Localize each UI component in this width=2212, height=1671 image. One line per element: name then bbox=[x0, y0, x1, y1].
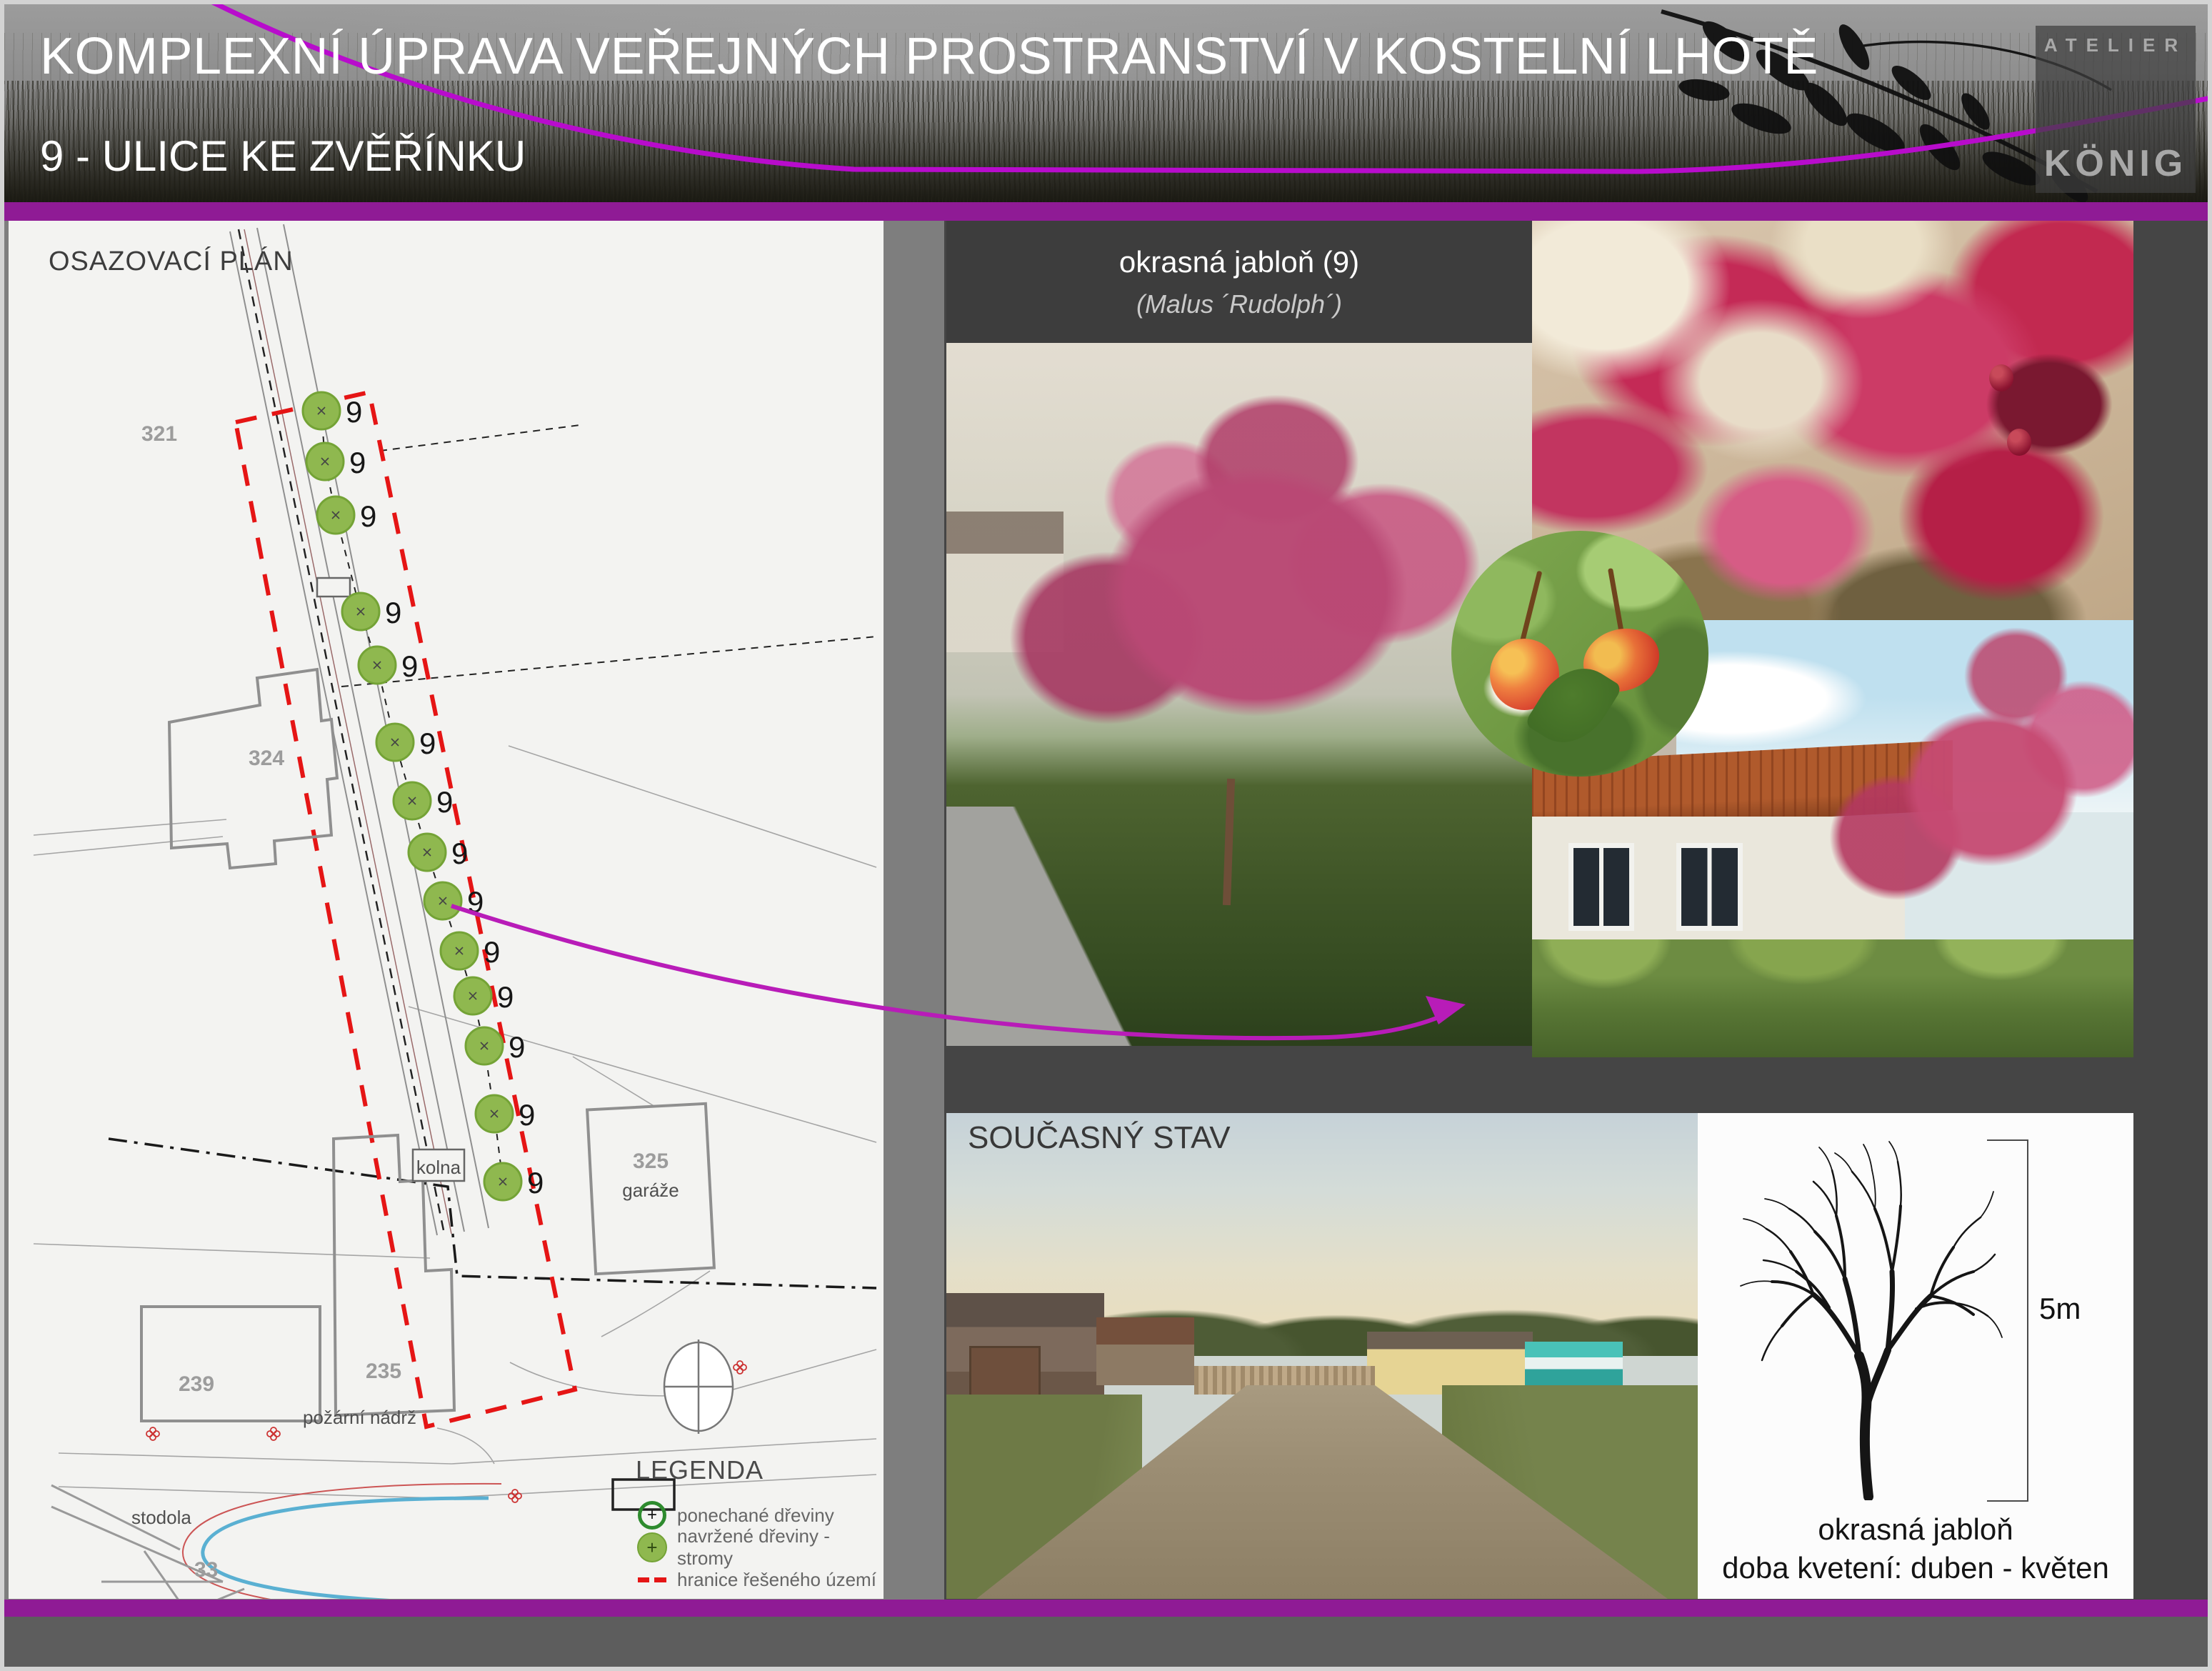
compass-icon bbox=[664, 1340, 733, 1434]
map-label-321: 321 bbox=[141, 422, 177, 446]
current-state-label: SOUČASNÝ STAV bbox=[968, 1120, 1231, 1156]
photo-blossom-tree-street bbox=[946, 343, 1532, 1046]
legend-item-boundary: hranice řešeného území bbox=[636, 1565, 879, 1594]
proposed-tree-symbol: 9 bbox=[424, 882, 484, 919]
tree-number-label: 9 bbox=[527, 1166, 544, 1199]
tree-number-label: 9 bbox=[436, 785, 453, 819]
proposed-tree-symbol: 9 bbox=[342, 593, 401, 630]
map-label-layer: 321324325garážekolna235239požární nádržs… bbox=[131, 422, 679, 1582]
tree-number-label: 9 bbox=[360, 499, 376, 533]
proposed-tree-symbol: 9 bbox=[303, 392, 362, 429]
photo-window bbox=[1568, 843, 1635, 930]
boundary-dash-icon bbox=[638, 1577, 666, 1582]
proposed-tree-symbol: 9 bbox=[376, 724, 436, 761]
map-label-235: 235 bbox=[366, 1360, 401, 1383]
photo-current-state-street: SOUČASNÝ STAV bbox=[946, 1113, 1698, 1599]
legend-item-label: navržené dřeviny - stromy bbox=[677, 1525, 879, 1570]
photo-shed bbox=[1096, 1317, 1194, 1385]
legend-item-proposed: + navržené dřeviny - stromy bbox=[636, 1533, 879, 1562]
tree-number-label: 9 bbox=[346, 395, 362, 429]
building-239 bbox=[141, 1307, 320, 1421]
poster-canvas: KOMPLEXNÍ ÚPRAVA VEŘEJNÝCH PROSTRANSTVÍ … bbox=[0, 0, 2212, 1671]
proposed-tree-symbol: 9 bbox=[466, 1027, 525, 1064]
tree-number-label: 9 bbox=[451, 837, 468, 870]
photo-blossom-crown bbox=[981, 378, 1508, 842]
kept-tree-icon: + bbox=[638, 1501, 666, 1530]
fruit-stem bbox=[1608, 568, 1624, 634]
species-latin-name: (Malus ´Rudolph´) bbox=[1136, 289, 1342, 319]
tree-number-label: 9 bbox=[519, 1098, 535, 1132]
purple-bar-top bbox=[4, 202, 2208, 221]
map-label-požární-nádrž: požární nádrž bbox=[303, 1407, 416, 1428]
map-label-239: 239 bbox=[179, 1372, 214, 1396]
map-label-kolna: kolna bbox=[416, 1157, 461, 1178]
tree-number-label: 9 bbox=[484, 935, 500, 969]
proposed-tree-icon: + bbox=[637, 1532, 667, 1562]
tree-number-label: 9 bbox=[401, 649, 418, 683]
caption-species: okrasná jabloň bbox=[1698, 1510, 2133, 1549]
bare-tree-silhouette bbox=[1722, 1129, 2018, 1500]
purple-bar-bottom bbox=[4, 1600, 2208, 1617]
map-label-garáže: garáže bbox=[622, 1179, 679, 1201]
atelier-konig-logo: ATELIER KÖNIG bbox=[2036, 26, 2196, 193]
height-label: 5m bbox=[2039, 1292, 2081, 1326]
small-structure-marker bbox=[317, 578, 350, 597]
map-label-stodola: stodola bbox=[131, 1507, 191, 1528]
proposed-tree-symbol: 9 bbox=[394, 782, 453, 819]
proposed-tree-symbol: 9 bbox=[484, 1163, 544, 1200]
fire-pond-lines bbox=[183, 1484, 501, 1599]
dash-dot-line bbox=[109, 1139, 876, 1288]
caption-bloom-time: doba kvetení: duben - květen bbox=[1698, 1549, 2133, 1587]
proposed-tree-symbol: 9 bbox=[476, 1095, 535, 1132]
photo-fruit-inset-circle bbox=[1451, 531, 1708, 777]
legend-item-label: hranice řešeného území bbox=[677, 1569, 876, 1591]
tree-number-label: 9 bbox=[467, 885, 484, 919]
tree-number-label: 9 bbox=[385, 596, 401, 629]
logo-atelier-text: ATELIER bbox=[2044, 34, 2187, 56]
proposed-tree-symbol: 9 bbox=[317, 497, 376, 534]
barn-lines bbox=[51, 1485, 244, 1599]
poster-title: KOMPLEXNÍ ÚPRAVA VEŘEJNÝCH PROSTRANSTVÍ … bbox=[40, 27, 1818, 86]
building-outlines bbox=[141, 669, 714, 1421]
tree-number-label: 9 bbox=[497, 980, 514, 1014]
proposed-tree-symbol: 9 bbox=[409, 834, 468, 871]
logo-konig-text: KÖNIG bbox=[2044, 142, 2187, 185]
logo-barcode-icon bbox=[2048, 64, 2183, 138]
poster-subtitle: 9 - ULICE KE ZVĚŘÍNKU bbox=[40, 131, 526, 181]
photo-street-wedge bbox=[946, 807, 1181, 1046]
project-boundary-red-dashed bbox=[236, 392, 575, 1427]
tree-layer: 99999999999999 bbox=[303, 392, 544, 1200]
header-band: KOMPLEXNÍ ÚPRAVA VEŘEJNÝCH PROSTRANSTVÍ … bbox=[4, 4, 2208, 202]
map-label-324: 324 bbox=[249, 747, 284, 770]
tree-number-label: 9 bbox=[349, 446, 366, 479]
proposed-tree-symbol: 9 bbox=[359, 647, 418, 684]
photo-fruit-dot bbox=[1989, 364, 2013, 391]
legend-title: LEGENDA bbox=[636, 1455, 879, 1485]
legend-item-label: ponechané dřeviny bbox=[677, 1505, 834, 1527]
map-label-325: 325 bbox=[633, 1149, 669, 1173]
photo-fruit-dot bbox=[2007, 429, 2031, 456]
street-lines bbox=[230, 224, 489, 1235]
dashed-axis-lines bbox=[239, 229, 876, 1234]
planting-plan-panel: 99999999999999 321324325garážekolna23523… bbox=[9, 221, 884, 1599]
proposed-tree-symbol: 9 bbox=[441, 932, 500, 969]
tree-detail-panel: 5m okrasná jabloň doba kvetení: duben - … bbox=[1698, 1113, 2133, 1599]
photo-shrubs bbox=[1532, 939, 2133, 1057]
legend: LEGENDA + ponechané dřeviny + navržené d… bbox=[636, 1455, 879, 1597]
height-bracket bbox=[1987, 1139, 2028, 1502]
proposed-tree-symbol: 9 bbox=[306, 443, 366, 480]
plan-title: OSAZOVACÍ PLÁN bbox=[49, 246, 294, 277]
map-label-33: 33 bbox=[194, 1558, 218, 1582]
photo-window bbox=[1676, 843, 1743, 930]
tree-number-label: 9 bbox=[509, 1030, 525, 1064]
tree-number-label: 9 bbox=[419, 727, 436, 760]
bottom-gray-strip bbox=[4, 1617, 2208, 1667]
plan-svg: 99999999999999 321324325garážekolna23523… bbox=[9, 221, 884, 1599]
proposed-tree-symbol: 9 bbox=[454, 977, 514, 1014]
fruit-stem bbox=[1520, 571, 1543, 644]
species-title: okrasná jabloň (9) bbox=[1119, 245, 1359, 279]
species-title-box: okrasná jabloň (9) (Malus ´Rudolph´) bbox=[946, 221, 1532, 343]
photo-crabapple-tree bbox=[1785, 620, 2133, 970]
